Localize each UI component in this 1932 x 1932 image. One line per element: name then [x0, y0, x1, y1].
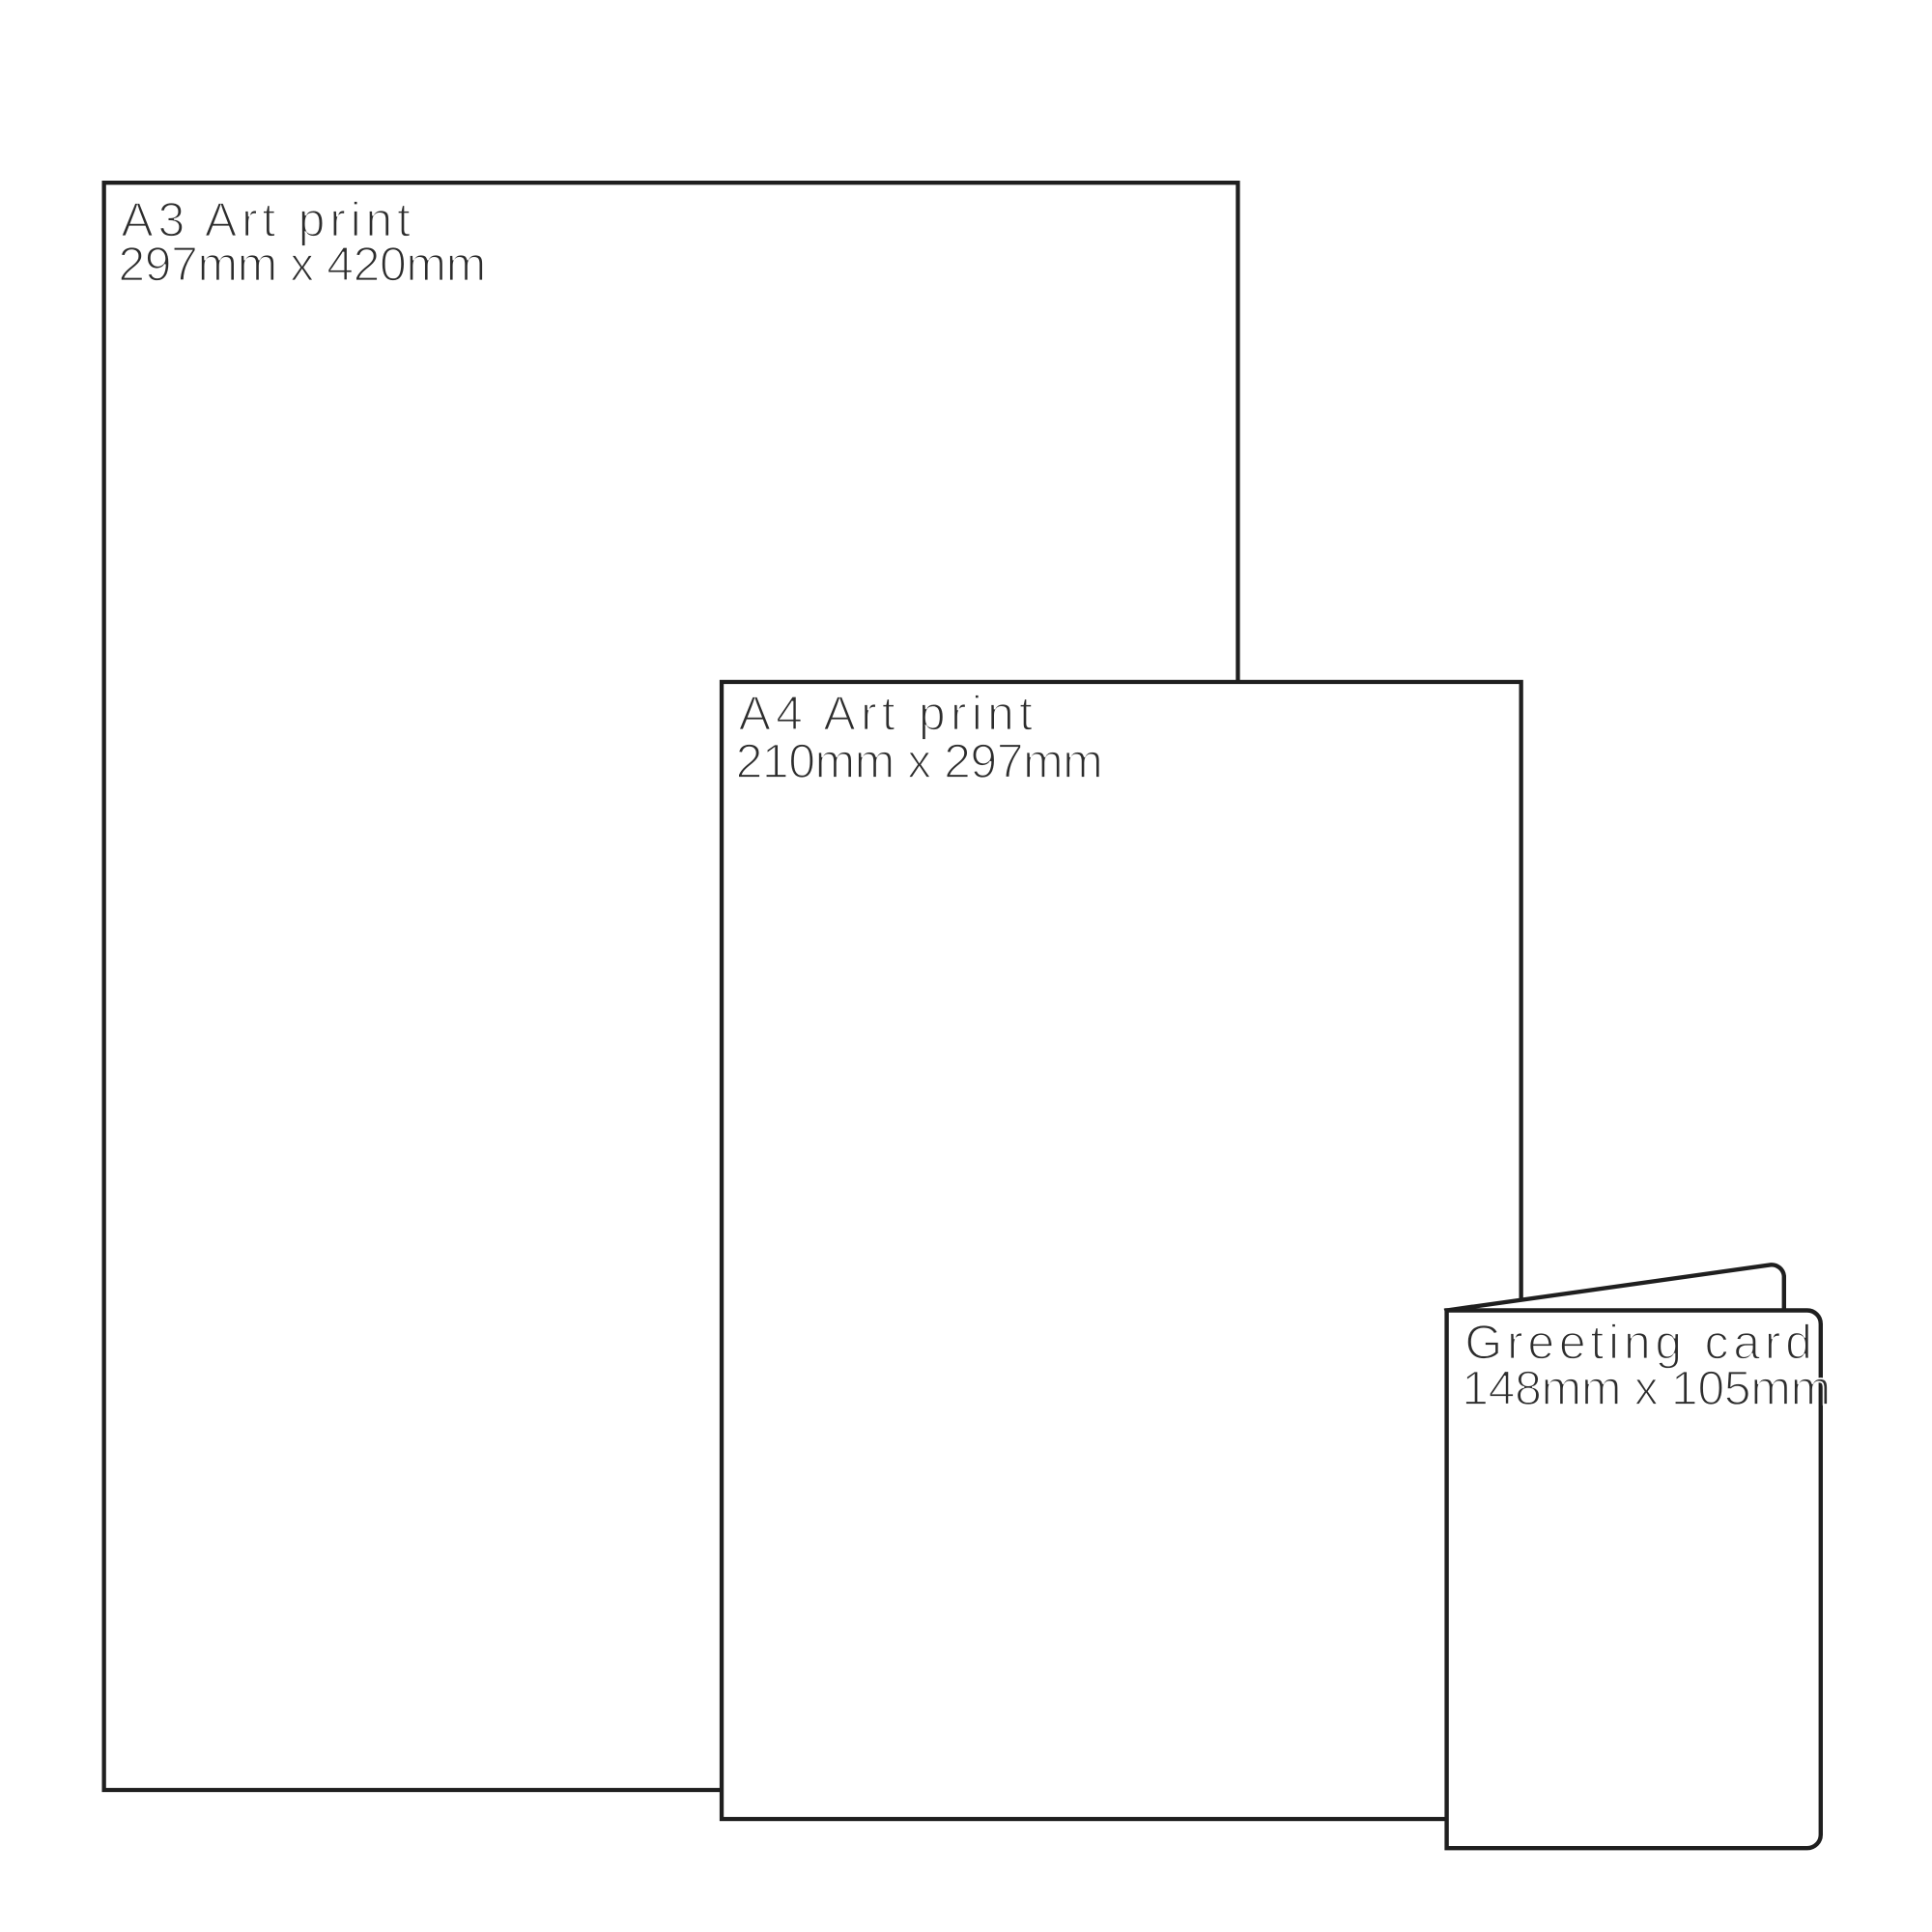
- svg-text:A4 Art print: A4 Art print: [739, 687, 1038, 741]
- svg-text:148mm x 105mm: 148mm x 105mm: [1462, 1361, 1831, 1415]
- svg-text:210mm x 297mm: 210mm x 297mm: [736, 734, 1103, 788]
- svg-text:297mm x 420mm: 297mm x 420mm: [118, 238, 485, 292]
